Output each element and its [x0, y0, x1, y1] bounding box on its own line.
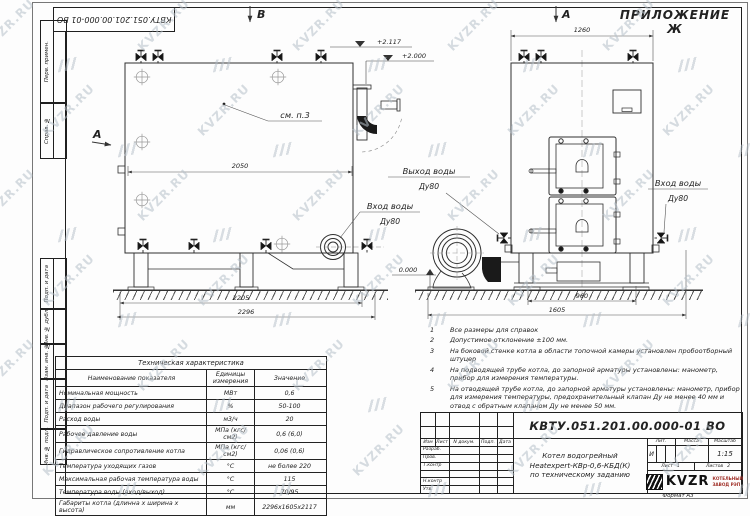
- tb-mass-header: Масса: [675, 438, 708, 445]
- spec-row: Расход водым3/ч20: [56, 412, 326, 425]
- tb-row-utv: Утв.: [423, 485, 449, 493]
- notes-list: 1Все размеры для справок 2Допустимое отк…: [430, 326, 740, 412]
- dim-front-width: 1260: [574, 26, 591, 34]
- front-view: [415, 50, 703, 298]
- tb-row-razrab: Разраб.: [423, 446, 449, 454]
- spec-row: Максимальная рабочая температура воды°С1…: [56, 472, 326, 485]
- tb-lit-header: Лит.: [647, 438, 675, 445]
- tb-doc-number: КВТУ.051.201.00.000-01 ВО: [513, 413, 742, 438]
- tb-sheet: Лист1: [647, 462, 694, 470]
- tb-scale-value: 1:15: [708, 445, 742, 462]
- spec-row: Диапазон рабочего регулирования%50-100: [56, 399, 326, 412]
- tb-col-podp: Подп.: [479, 438, 497, 446]
- note-item: 2Допустимое отклонение ±100 мм.: [430, 336, 740, 345]
- spec-row: Габариты котла (длинна х ширина х высота…: [56, 498, 326, 515]
- spec-table: Техническая характеристика Наименование …: [55, 356, 327, 516]
- tb-row-nkontr: Н.контр: [423, 477, 449, 485]
- tb-sheets: Листов2: [694, 462, 742, 470]
- tb-row-prov: Пров.: [423, 454, 449, 462]
- inlet-side-dn: Ду80: [379, 217, 400, 226]
- format-label: Формат А3: [615, 493, 741, 499]
- inlet-side-label: Вход воды: [367, 201, 414, 211]
- kvzr-logo-subtext: КОТЕЛЬНЫЙ ЗАВОД РЭП: [712, 476, 743, 487]
- tb-company: KVZR КОТЕЛЬНЫЙ ЗАВОД РЭП: [647, 470, 742, 493]
- note-item: 3На боковой стенке котла в области топоч…: [430, 347, 740, 365]
- dim-side-width: 2050: [232, 162, 249, 170]
- spec-row: Температура воды (вход/выход)°С70/95: [56, 485, 326, 498]
- elevation-zero: 0.000: [399, 266, 418, 274]
- dim-front-base: 960: [576, 292, 588, 300]
- tb-lit-value: И: [647, 445, 656, 462]
- outlet-label: Выход воды: [403, 166, 456, 176]
- tb-col-dokum: N докум.: [449, 438, 479, 446]
- section-label-b: B: [257, 8, 265, 21]
- inlet-front-label: Вход воды: [655, 178, 702, 188]
- spec-row: Температура уходящих газов°Сне более 220: [56, 459, 326, 472]
- tb-col-data: Дата: [497, 438, 513, 446]
- tb-col-izm: Изм: [421, 438, 435, 446]
- note-item: 4На подводящей трубе котла, до запорной …: [430, 366, 740, 384]
- kvzr-logo-text: KVZR: [666, 474, 710, 489]
- dim-front-overall: 1605: [549, 306, 566, 314]
- side-view: [113, 51, 402, 291]
- tb-scale-header: Масштаб: [708, 438, 742, 445]
- dim-side-base: 2205: [233, 294, 250, 302]
- note-item: 5На отводящей трубе котла, до запорной а…: [430, 385, 740, 411]
- note-item: 1Все размеры для справок: [430, 326, 740, 335]
- dim-side-overall: 2296: [238, 308, 255, 316]
- view-label-a-side: А: [92, 128, 102, 141]
- outlet-dn: Ду80: [418, 182, 439, 191]
- inlet-front-dn: Ду80: [667, 194, 688, 203]
- spec-table-title: Техническая характеристика: [56, 357, 326, 369]
- see-note-callout: см. п.3: [280, 110, 309, 120]
- spec-row: Рабочее давление водыМПа (кгс/см2)0,6 (6…: [56, 425, 326, 442]
- spec-row: Номинальная мощностьМВт0,6: [56, 386, 326, 399]
- title-block: Изм Лист N докум. Подп. Дата Разраб. Про…: [420, 412, 743, 494]
- tb-row-tkontr: Т.контр: [423, 462, 449, 470]
- spec-row: Гидравлическое сопротивление котлаМПа (к…: [56, 442, 326, 459]
- spec-header-row: Наименование показателя Единицы измерени…: [56, 369, 326, 386]
- tb-col-list: Лист: [435, 438, 449, 446]
- kvzr-logo-icon: [646, 474, 663, 490]
- view-label-a-front: А: [561, 8, 571, 21]
- elevation-outlet: +2.000: [402, 52, 426, 60]
- tb-product-name: Котел водогрейный Heatexpert-КВр-0,6-КБД…: [513, 438, 647, 493]
- elevation-top: +2.117: [377, 38, 402, 46]
